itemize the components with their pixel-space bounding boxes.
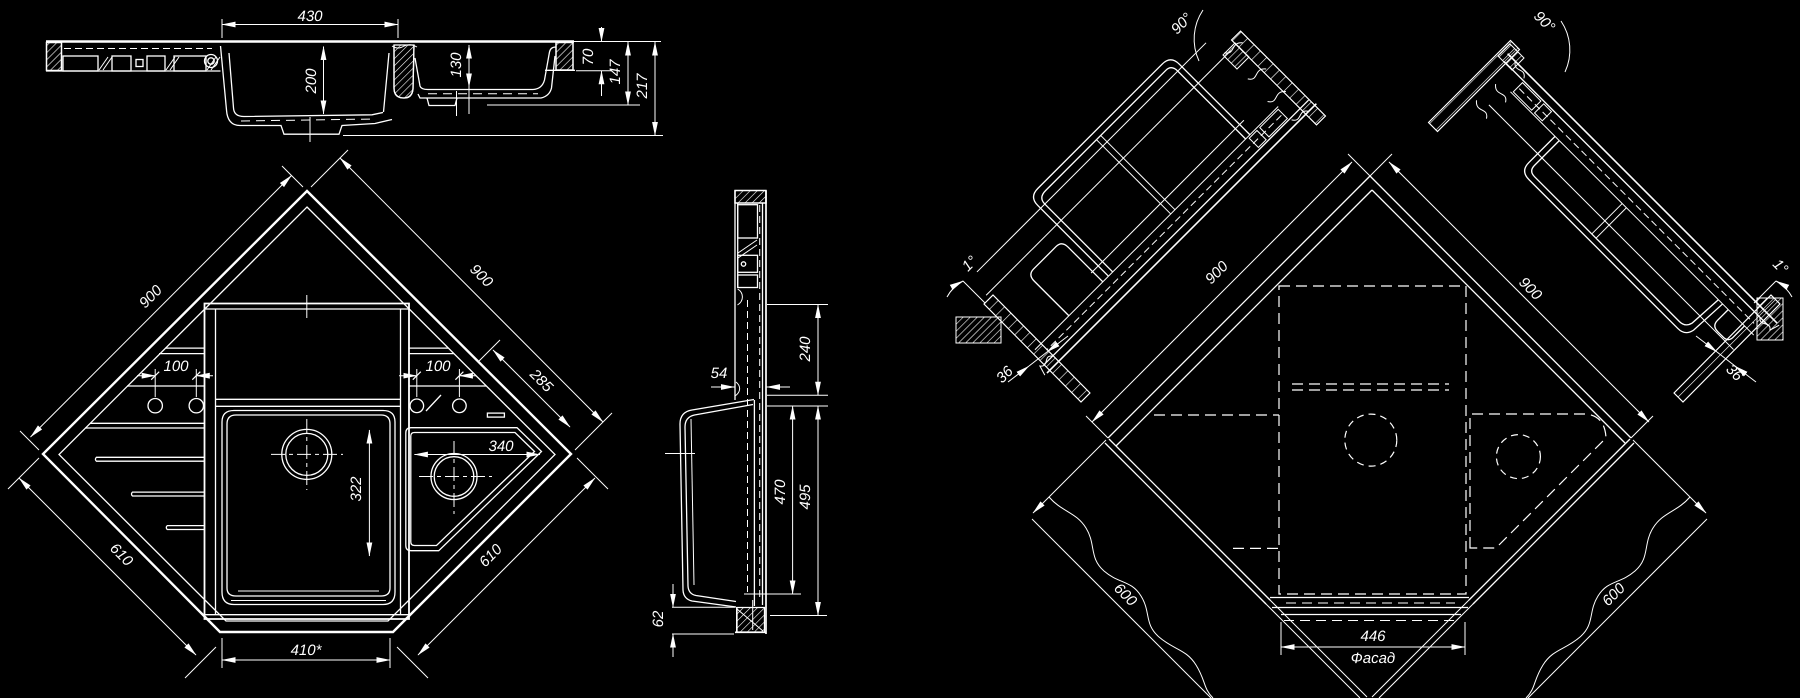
svg-text:70: 70 <box>580 48 597 65</box>
svg-text:100: 100 <box>425 358 451 375</box>
svg-text:217: 217 <box>634 73 651 100</box>
svg-text:147: 147 <box>607 59 624 85</box>
svg-text:240: 240 <box>797 336 814 363</box>
svg-text:322: 322 <box>348 476 365 502</box>
svg-text:446: 446 <box>1360 628 1386 645</box>
svg-text:54: 54 <box>711 365 728 382</box>
svg-text:130: 130 <box>448 52 465 78</box>
svg-text:470: 470 <box>772 479 789 505</box>
svg-text:410*: 410* <box>291 642 323 659</box>
svg-text:Фасад: Фасад <box>1351 650 1395 667</box>
svg-text:340: 340 <box>488 438 514 455</box>
svg-text:62: 62 <box>650 610 667 627</box>
svg-text:200: 200 <box>303 68 320 95</box>
svg-text:100: 100 <box>163 358 189 375</box>
svg-text:495: 495 <box>797 484 814 510</box>
svg-text:430: 430 <box>297 8 323 25</box>
